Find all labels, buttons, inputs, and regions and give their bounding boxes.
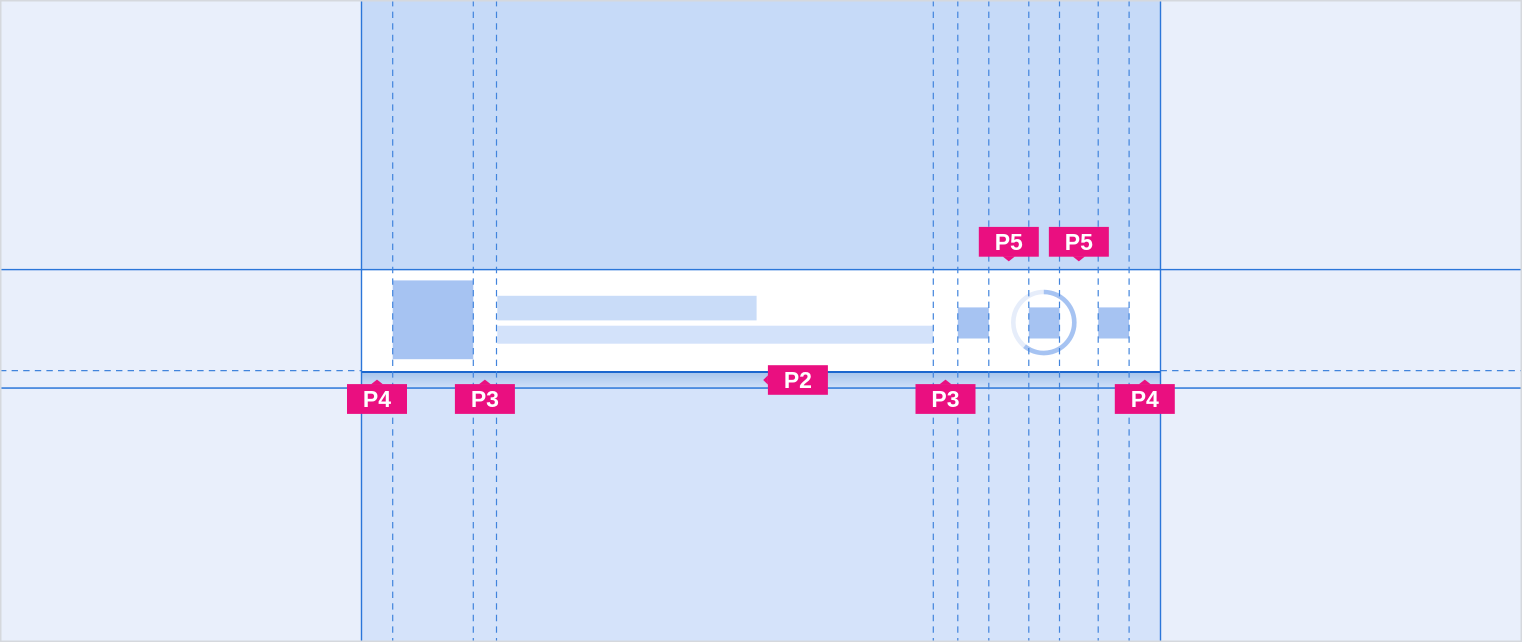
- svg-text:P3: P3: [471, 386, 499, 412]
- svg-text:P5: P5: [1065, 229, 1093, 255]
- svg-text:P5: P5: [995, 229, 1023, 255]
- svg-text:P4: P4: [1131, 386, 1159, 412]
- svg-text:P2: P2: [784, 367, 812, 393]
- svg-text:P3: P3: [931, 386, 959, 412]
- svg-text:P4: P4: [363, 386, 391, 412]
